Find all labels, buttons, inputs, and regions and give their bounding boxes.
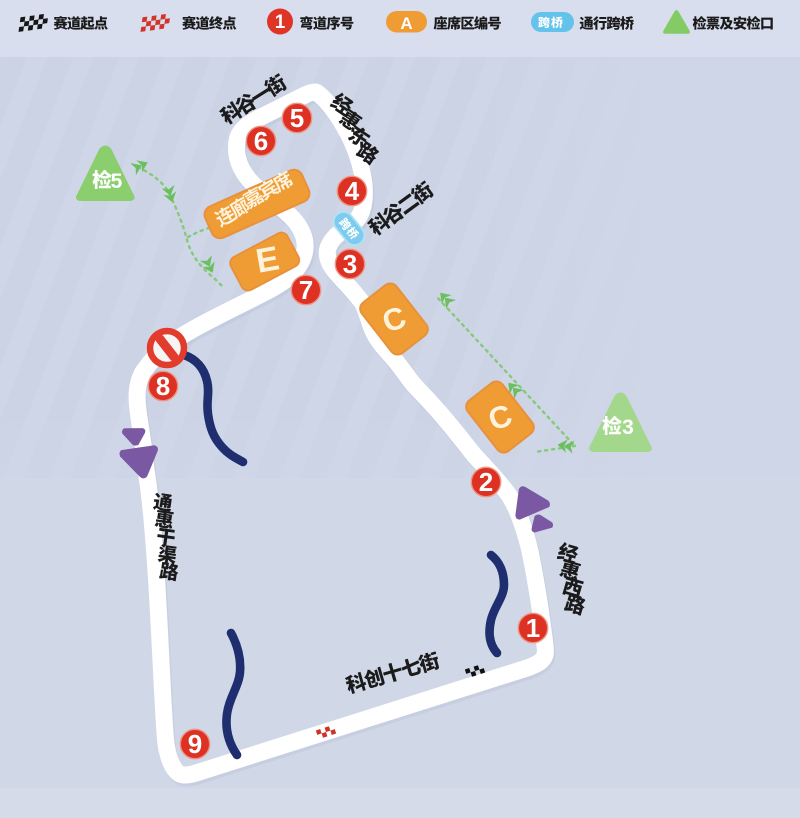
svg-text:A: A [400, 14, 412, 33]
svg-text:7: 7 [299, 275, 313, 305]
svg-text:4: 4 [345, 176, 360, 206]
svg-text:8: 8 [156, 371, 170, 401]
svg-text:5: 5 [290, 103, 304, 133]
svg-text:3: 3 [343, 249, 357, 279]
svg-text:6: 6 [254, 126, 268, 156]
svg-text:9: 9 [188, 729, 202, 759]
svg-text:1: 1 [275, 12, 286, 33]
svg-text:1: 1 [526, 613, 540, 643]
svg-text:5: 5 [111, 170, 123, 193]
svg-text:3: 3 [622, 416, 634, 439]
svg-text:2: 2 [479, 467, 493, 497]
